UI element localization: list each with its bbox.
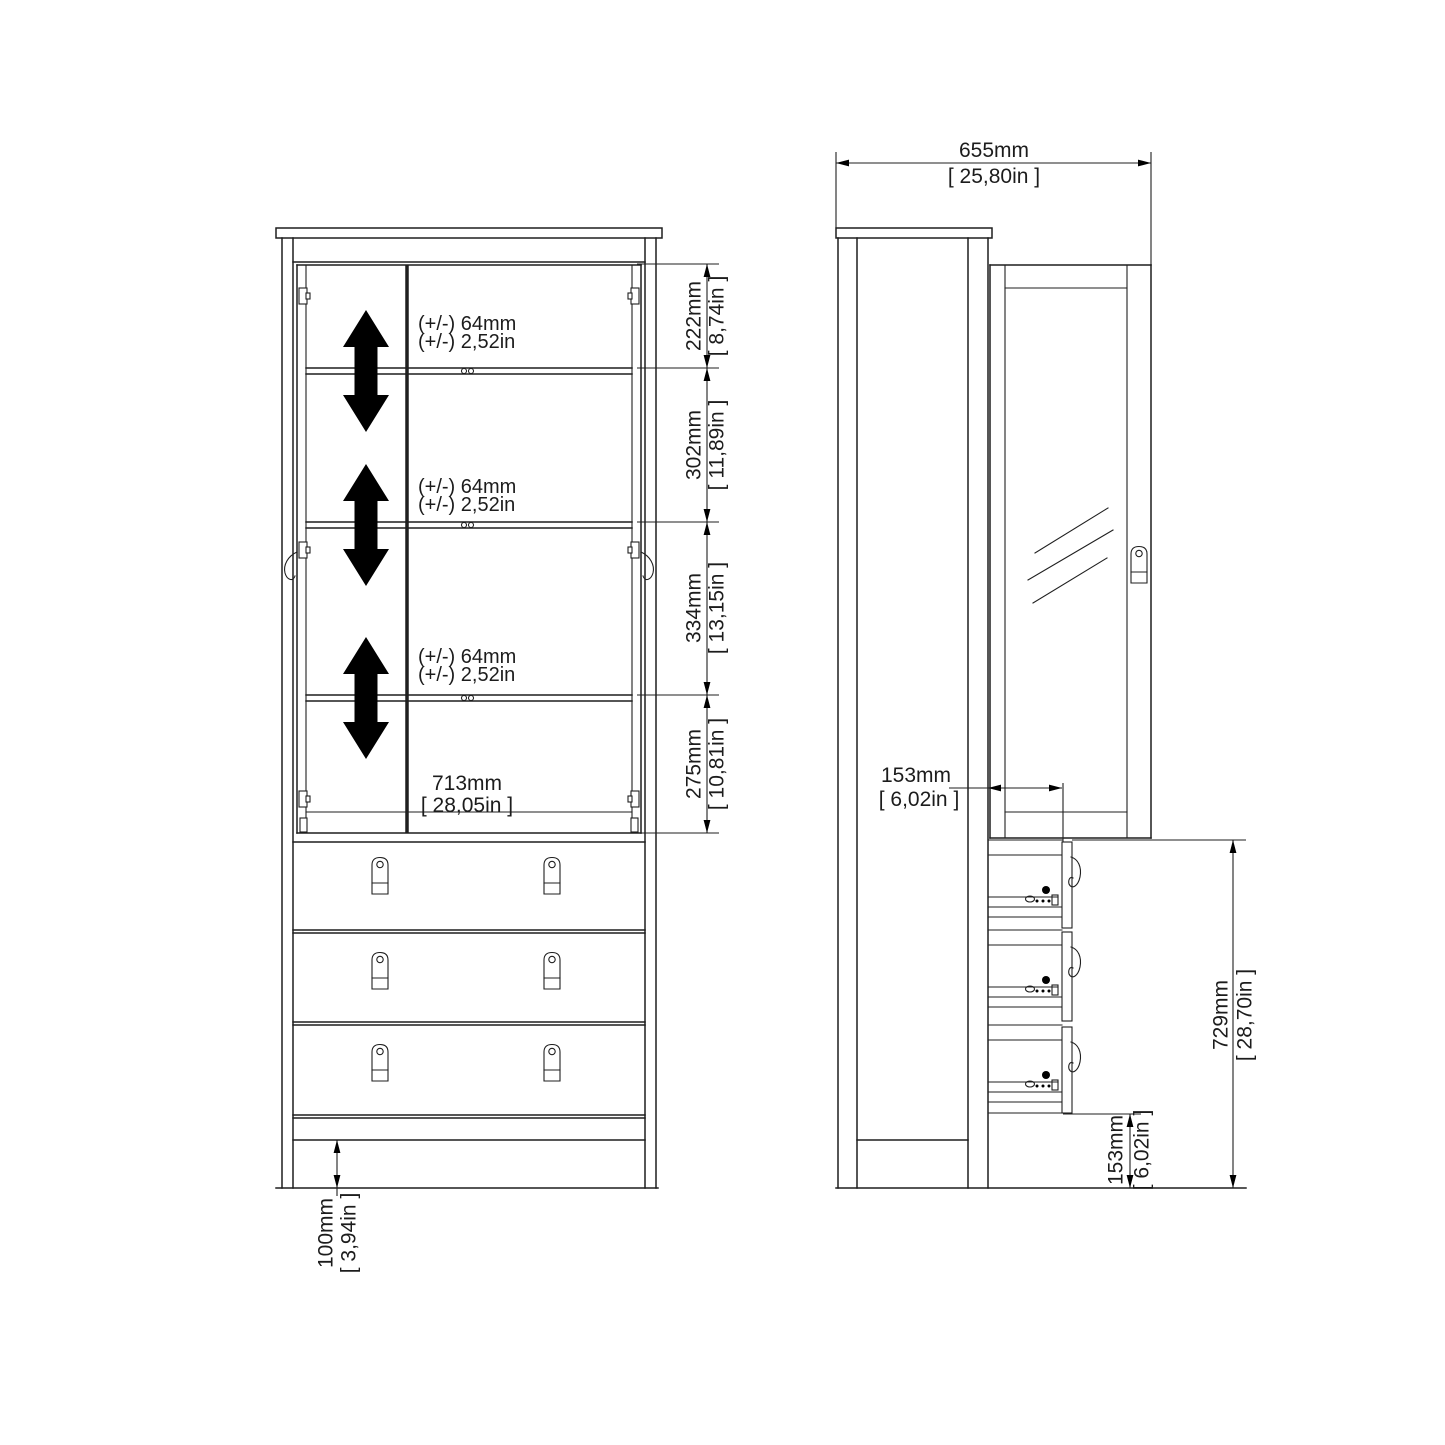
dim-655mm-label: 655mm <box>959 139 1029 162</box>
dimension-section-heights: 222mm [ 8,74in ] 302mm [ 11,89in ] 334mm… <box>637 264 729 833</box>
dim-153mm-bottom-inch: [ 6,02in ] <box>1131 1110 1154 1191</box>
arrowhead <box>704 509 711 522</box>
dim-275mm-inch: [ 10,81in ] <box>706 718 729 810</box>
shelf-adjust-notes: (+/-) 64mm (+/-) 2,52in (+/-) 64mm (+/-)… <box>418 313 516 686</box>
dimension-base-height: 153mm [ 6,02in ] <box>1063 1110 1154 1191</box>
interior-width-label: 713mm [ 28,05in ] <box>421 772 513 817</box>
interior-width-imperial: [ 28,05in ] <box>421 794 513 817</box>
runner-roller <box>1042 886 1050 894</box>
arrowhead <box>334 1140 341 1153</box>
door-handle-icon <box>1131 547 1147 584</box>
arrowhead <box>704 368 711 381</box>
shelf-pin-hole <box>462 523 467 528</box>
door-bottom-pivot <box>300 818 307 832</box>
front-view: (+/-) 64mm (+/-) 2,52in (+/-) 64mm (+/-)… <box>276 228 729 1273</box>
arrowhead <box>334 1175 341 1188</box>
arrowhead <box>704 522 711 535</box>
shelf-note-2-imperial: (+/-) 2,52in <box>418 494 515 516</box>
drawer-front-edge <box>1062 1027 1072 1113</box>
dimension-plinth-height: 100mm [ 3,94in ] <box>315 1140 361 1273</box>
dim-100mm-inch: [ 3,94in ] <box>338 1193 361 1274</box>
arrowhead <box>704 264 711 277</box>
runner-roller <box>1042 1071 1050 1079</box>
shelf-pin-hole <box>462 369 467 374</box>
dim-655mm-inch: [ 25,80in ] <box>948 165 1040 188</box>
dim-729mm-label: 729mm <box>1210 980 1233 1050</box>
dim-222mm-label: 222mm <box>683 281 706 351</box>
shelf-pin-hole <box>469 523 474 528</box>
drawer-fronts <box>372 858 560 1082</box>
shelf-pin-hole <box>462 696 467 701</box>
drawer-handle-icon <box>544 1045 560 1082</box>
double-arrow-icon <box>343 637 389 759</box>
door-hinge-icon <box>299 542 310 558</box>
arrowhead <box>704 820 711 833</box>
arrowhead <box>836 160 849 167</box>
double-arrow-icon <box>343 464 389 586</box>
drawer-handle-icon <box>372 1045 388 1082</box>
drawer-side-2 <box>988 930 1081 1021</box>
dim-153mm-top-inch: [ 6,02in ] <box>879 788 960 811</box>
arrowhead <box>704 695 711 708</box>
dim-153mm-bottom-label: 153mm <box>1105 1115 1128 1185</box>
runner-roller <box>1042 976 1050 984</box>
drawer-side-1 <box>988 840 1081 928</box>
door-bottom-pivot <box>631 818 638 832</box>
drawer-handle-icon <box>544 858 560 895</box>
dim-275mm-label: 275mm <box>683 729 706 799</box>
drawer-side-3 <box>988 1025 1081 1113</box>
dim-153mm-top-label: 153mm <box>881 764 951 787</box>
double-arrow-icon <box>343 310 389 432</box>
dimension-depth: 655mm [ 25,80in ] <box>836 139 1151 265</box>
dimension-drawer-inset: 153mm [ 6,02in ] <box>879 764 1063 842</box>
dim-334mm-label: 334mm <box>683 573 706 643</box>
door-hinge-icon <box>299 288 310 304</box>
arrowhead <box>704 682 711 695</box>
door-pull-hook-icon <box>641 552 653 580</box>
dim-334mm-inch: [ 13,15in ] <box>706 562 729 654</box>
arrowhead <box>1049 785 1062 792</box>
arrowhead <box>1230 1175 1237 1188</box>
drawer-stack-side <box>988 840 1081 1113</box>
dim-729mm-inch: [ 28,70in ] <box>1234 969 1257 1061</box>
dim-302mm-inch: [ 11,89in ] <box>706 400 729 491</box>
shelf-pin-hole <box>469 369 474 374</box>
door-hinge-icon <box>299 791 310 807</box>
drawer-handle-icon <box>372 953 388 990</box>
drawer-front-edge <box>1062 842 1072 928</box>
shelf-note-3-imperial: (+/-) 2,52in <box>418 664 515 686</box>
door-hinge-icon <box>628 542 639 558</box>
dim-222mm-inch: [ 8,74in ] <box>706 276 729 357</box>
shelf-adjust-arrows <box>343 310 389 759</box>
glass-door-side <box>990 265 1151 838</box>
side-view: 655mm [ 25,80in ] 153mm [ 6,02in ] 729mm… <box>836 139 1257 1190</box>
door-hinge-icon <box>628 288 639 304</box>
assembly-dimension-drawing: (+/-) 64mm (+/-) 2,52in (+/-) 64mm (+/-)… <box>0 0 1445 1445</box>
cabinet-side-outline <box>836 228 1246 1188</box>
shelf-pin-hole <box>469 696 474 701</box>
interior-width-metric: 713mm <box>432 772 502 795</box>
drawer-handle-icon <box>372 858 388 895</box>
door-hinge-icon <box>628 791 639 807</box>
drawer-handle-icon <box>544 953 560 990</box>
dim-302mm-label: 302mm <box>683 410 706 480</box>
dimension-drawer-stack-height: 729mm [ 28,70in ] <box>1072 840 1257 1188</box>
technical-drawing-page: (+/-) 64mm (+/-) 2,52in (+/-) 64mm (+/-)… <box>0 0 1445 1445</box>
glass-reflection-lines <box>1028 508 1113 603</box>
arrowhead <box>1138 160 1151 167</box>
arrowhead <box>1230 840 1237 853</box>
door-pull-hook-icon <box>285 552 297 580</box>
dim-100mm-label: 100mm <box>315 1198 338 1268</box>
shelf-note-1-imperial: (+/-) 2,52in <box>418 331 515 353</box>
